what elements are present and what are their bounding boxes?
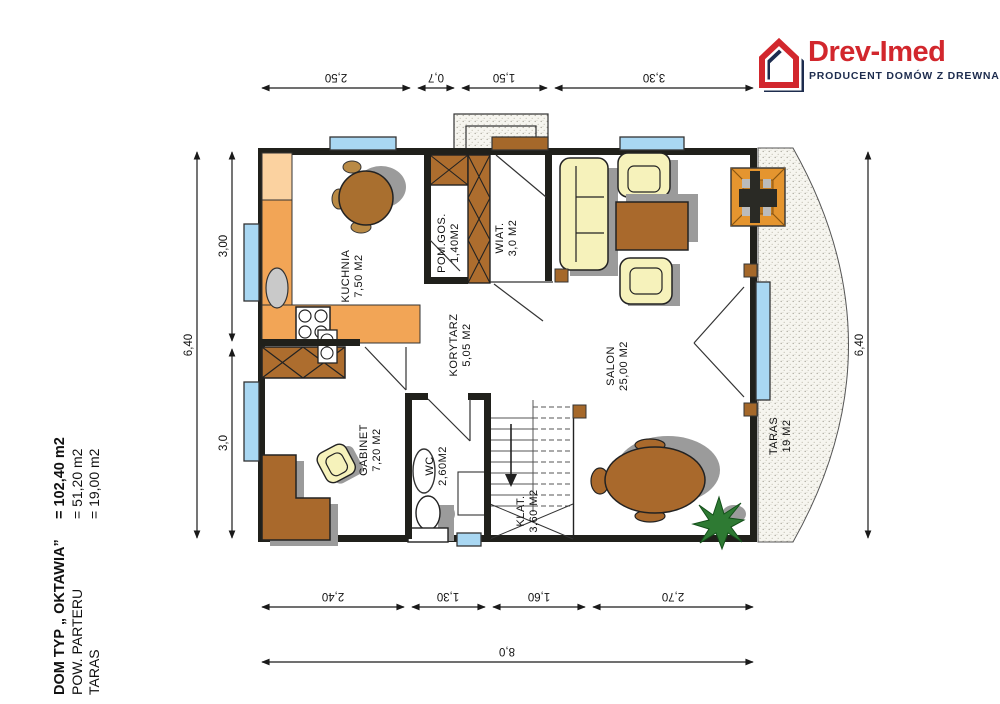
dim-top-1: 2,50 (325, 71, 347, 83)
room-name-kuchnia: KUCHNIA (340, 249, 352, 302)
logo: Drev-Imed PRODUCENT DOMÓW Z DREWNA (750, 32, 990, 94)
room-area-taras: 19 M2 (781, 419, 793, 452)
dim-bottom-1: 2,40 (322, 590, 344, 602)
window-salon-top (620, 137, 684, 150)
room-label-salon: SALON 25,00 M2 (605, 341, 630, 391)
dim-bottom-4: 2,70 (662, 590, 684, 602)
armchair-bottom (620, 258, 680, 306)
sofa (560, 158, 618, 276)
shower (458, 472, 487, 515)
room-name-klatka: KLAT. (515, 495, 527, 526)
floor-plan-svg: KUCHNIA 7,50 M2 POM.GOS. 1,40M2 WIAT. 3,… (0, 0, 1000, 704)
window-gabinet-left (244, 382, 259, 461)
room-name-pomgos: POM.GOS. (436, 213, 448, 273)
room-name-wiat: WIAT. (494, 222, 506, 253)
room-label-kuchnia: KUCHNIA 7,50 M2 (340, 249, 365, 302)
room-area-wc: 2,60M2 (437, 446, 449, 486)
title-line-1-value: = 102,40 m2 (52, 437, 69, 519)
title-line-1: DOM TYP „ OKTAWIA” = 102,40 m2 (52, 405, 69, 695)
dim-left-inner-2: 3,0 (218, 435, 230, 451)
dim-top-2: 0,7 (428, 71, 444, 83)
fireplace (731, 168, 785, 226)
logo-house-icon (753, 34, 809, 94)
window-kitchen-left (244, 224, 259, 301)
title-line-3-value: = 19,00 m2 (86, 449, 103, 519)
window-kitchen-top (330, 137, 396, 150)
chimney-strip (468, 155, 490, 283)
room-area-klatka: 3,60 M2 (528, 489, 540, 532)
coffee-table (616, 194, 698, 250)
room-area-kuchnia: 7,50 M2 (353, 254, 365, 297)
entrance-door (492, 137, 548, 150)
room-area-salon: 25,00 M2 (618, 341, 630, 391)
window-bottom (457, 533, 481, 546)
title-line-1-label: DOM TYP „ OKTAWIA” (52, 519, 69, 695)
dim-left-inner-1: 3,00 (218, 235, 230, 257)
room-label-wiat: WIAT. 3,0 M2 (494, 220, 519, 257)
dim-top-3: 1,50 (493, 71, 515, 83)
title-line-2-value: = 51,20 m2 (69, 449, 86, 519)
scanned-floor-plan-page: KUCHNIA 7,50 M2 POM.GOS. 1,40M2 WIAT. 3,… (0, 0, 1000, 704)
dim-bottom-3: 1,60 (528, 590, 550, 602)
dim-right: 6,40 (854, 334, 866, 356)
title-block: DOM TYP „ OKTAWIA” = 102,40 m2 POW. PART… (52, 405, 103, 695)
room-name-taras: TARAS (768, 417, 780, 455)
room-name-korytarz: KORYTARZ (448, 314, 460, 377)
room-label-klatka: KLAT. 3,60 M2 (515, 489, 540, 532)
room-label-taras: TARAS 19 M2 (768, 417, 793, 455)
room-name-wc: WC (424, 456, 436, 475)
brand-tagline: PRODUCENT DOMÓW Z DREWNA (809, 70, 1000, 82)
title-line-2-label: POW. PARTERU (69, 519, 86, 695)
room-area-gabinet: 7,20 M2 (371, 428, 383, 471)
room-name-salon: SALON (605, 346, 617, 386)
dim-top-4: 3,30 (643, 71, 665, 83)
brand-name: Drev-Imed (808, 36, 945, 69)
kitchen-sink (266, 268, 288, 308)
room-area-wiat: 3,0 M2 (507, 220, 519, 257)
cabinet-x-pomgos (430, 155, 468, 185)
room-area-korytarz: 5,05 M2 (461, 323, 473, 366)
title-line-3: TARAS = 19,00 m2 (86, 405, 103, 695)
room-name-gabinet: GABINET (358, 424, 370, 476)
title-line-3-label: TARAS (86, 519, 103, 695)
dim-bottom-2: 1,30 (437, 590, 459, 602)
dim-bottom-total: 8,0 (499, 645, 515, 657)
dim-left-outer: 6,40 (183, 334, 195, 356)
room-area-pomgos: 1,40M2 (449, 223, 461, 263)
terrace-door-glass (756, 282, 770, 400)
room-label-gabinet: GABINET 7,20 M2 (358, 424, 383, 476)
hob-box (318, 330, 337, 363)
title-line-2: POW. PARTERU = 51,20 m2 (69, 405, 86, 695)
